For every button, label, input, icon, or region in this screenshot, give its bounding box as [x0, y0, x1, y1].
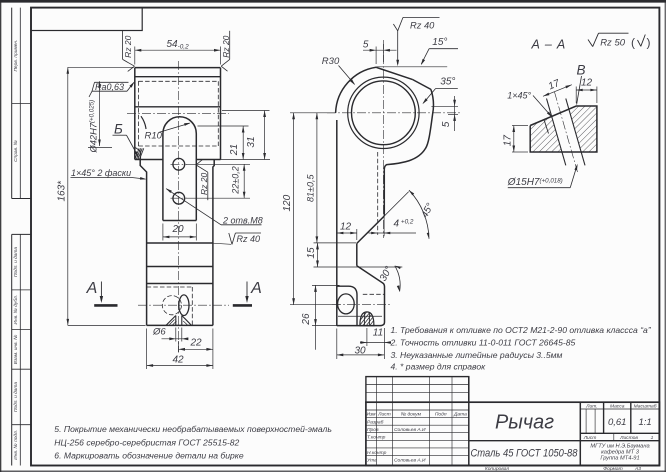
- svg-text:3. Неуказанные литейные радиу: 3. Неуказанные литейные радиусы 3..5мм: [391, 350, 563, 360]
- svg-text:Масштаб: Масштаб: [634, 403, 657, 409]
- svg-text:1: 1: [651, 435, 654, 441]
- svg-text:6. Маркировать обозначение дет: 6. Маркировать обозначение детали на бир…: [54, 451, 244, 461]
- svg-text:Подп. и дата: Подп. и дата: [13, 382, 19, 412]
- svg-text:Копировал: Копировал: [485, 466, 510, 472]
- svg-text:№ докум: № докум: [401, 412, 422, 418]
- svg-text:Листов: Листов: [619, 435, 638, 441]
- svg-text:15: 15: [306, 247, 317, 259]
- svg-text:Т.контр: Т.контр: [367, 435, 386, 441]
- svg-text:Утв: Утв: [367, 458, 377, 464]
- svg-text:Н.контр: Н.контр: [367, 450, 387, 456]
- svg-text:Rz 40: Rz 40: [410, 20, 435, 30]
- svg-text:Rz 20: Rz 20: [221, 35, 231, 57]
- svg-text:МГТУ им Н.Э.Баумана: МГТУ им Н.Э.Баумана: [590, 443, 649, 449]
- svg-text:Rz 20: Rz 20: [199, 173, 209, 195]
- svg-text:12: 12: [581, 78, 593, 89]
- svg-text:А: А: [250, 280, 262, 297]
- svg-text:1:1: 1:1: [638, 417, 651, 428]
- svg-text:22±0,2: 22±0,2: [231, 166, 241, 194]
- svg-text:Группа МТ4-91: Группа МТ4-91: [600, 456, 639, 462]
- svg-text:Сталь 45 ГОСТ 1050-88: Сталь 45 ГОСТ 1050-88: [471, 448, 579, 460]
- svg-text:): ): [647, 36, 651, 50]
- svg-text:120: 120: [282, 194, 293, 211]
- svg-text:Rz 40: Rz 40: [237, 234, 261, 244]
- svg-text:1×45°: 1×45°: [507, 91, 531, 101]
- svg-text:Рычаг: Рычаг: [495, 412, 554, 434]
- svg-text:81±0,5: 81±0,5: [306, 174, 316, 202]
- svg-text:Дата: Дата: [453, 412, 467, 418]
- svg-text:Rz 20: Rz 20: [123, 35, 133, 57]
- svg-text:11: 11: [373, 327, 383, 338]
- svg-text:22: 22: [189, 338, 202, 349]
- svg-text:Перв. примен.: Перв. примен.: [13, 40, 19, 72]
- svg-text:R30: R30: [322, 56, 340, 67]
- svg-text:0,61: 0,61: [608, 417, 627, 428]
- svg-text:Б: Б: [114, 122, 123, 137]
- svg-text:Лист: Лист: [583, 435, 597, 441]
- svg-text:21: 21: [229, 144, 240, 156]
- svg-text:НЦ-256 серебро-серебристая ГОС: НЦ-256 серебро-серебристая ГОСТ 25515-82: [54, 437, 239, 447]
- svg-text:Справ. №: Справ. №: [13, 140, 19, 162]
- svg-text:Инв. № дубл.: Инв. № дубл.: [13, 295, 19, 325]
- svg-text:Ø6: Ø6: [152, 326, 166, 337]
- svg-text:Формат: Формат: [603, 466, 622, 472]
- svg-text:кафедра МТ 3: кафедра МТ 3: [601, 450, 640, 456]
- svg-text:А: А: [86, 280, 98, 297]
- svg-text:А3: А3: [634, 466, 641, 472]
- svg-text:(: (: [631, 36, 635, 50]
- svg-text:Rz 50: Rz 50: [600, 38, 626, 49]
- svg-text:1×45° 2 фаски: 1×45° 2 фаски: [71, 168, 131, 178]
- svg-text:31: 31: [246, 136, 257, 147]
- svg-text:5: 5: [441, 121, 452, 127]
- svg-text:Подп. и дата: Подп. и дата: [13, 247, 19, 277]
- svg-text:Соловьев А.И: Соловьев А.И: [394, 458, 426, 464]
- svg-text:Взам. инв. №: Взам. инв. №: [13, 335, 19, 365]
- svg-text:А – А: А – А: [531, 38, 567, 52]
- svg-text:20: 20: [171, 224, 184, 235]
- svg-text:Соловьев А.И: Соловьев А.И: [394, 427, 426, 433]
- svg-text:15°: 15°: [432, 37, 447, 48]
- svg-text:Инв. № подл.: Инв. № подл.: [13, 430, 19, 460]
- svg-text:Подп: Подп: [435, 412, 447, 418]
- svg-text:4. * размер для справок: 4. * размер для справок: [391, 361, 487, 371]
- svg-text:5: 5: [363, 40, 369, 51]
- svg-text:42: 42: [172, 355, 184, 366]
- svg-text:2 отв.М8: 2 отв.М8: [222, 216, 263, 226]
- svg-text:12: 12: [340, 222, 352, 233]
- svg-text:17: 17: [502, 135, 513, 147]
- svg-text:35°: 35°: [440, 76, 455, 87]
- svg-text:163*: 163*: [57, 180, 68, 202]
- svg-text:Лист: Лист: [377, 412, 391, 418]
- svg-text:26: 26: [301, 313, 312, 326]
- svg-text:В: В: [577, 63, 586, 78]
- svg-text:Изм: Изм: [366, 412, 376, 418]
- svg-text:Ra0,63: Ra0,63: [95, 82, 124, 92]
- svg-text:Масса: Масса: [610, 403, 625, 409]
- svg-text:30: 30: [354, 345, 366, 356]
- svg-text:Разраб: Разраб: [367, 420, 384, 426]
- svg-text:Лит.: Лит.: [585, 403, 597, 409]
- svg-text:5. Покрытие механически необ: 5. Покрытие механически необрабатываемых…: [54, 424, 332, 434]
- svg-text:2. Точность отливки 11-0-011: 2. Точность отливки 11-0-011 ГОСТ 26645-…: [390, 337, 576, 347]
- svg-text:1. Требования к отливке по ОС: 1. Требования к отливке по ОСТ2 М21-2-90…: [391, 325, 652, 335]
- svg-text:Пров: Пров: [367, 427, 379, 433]
